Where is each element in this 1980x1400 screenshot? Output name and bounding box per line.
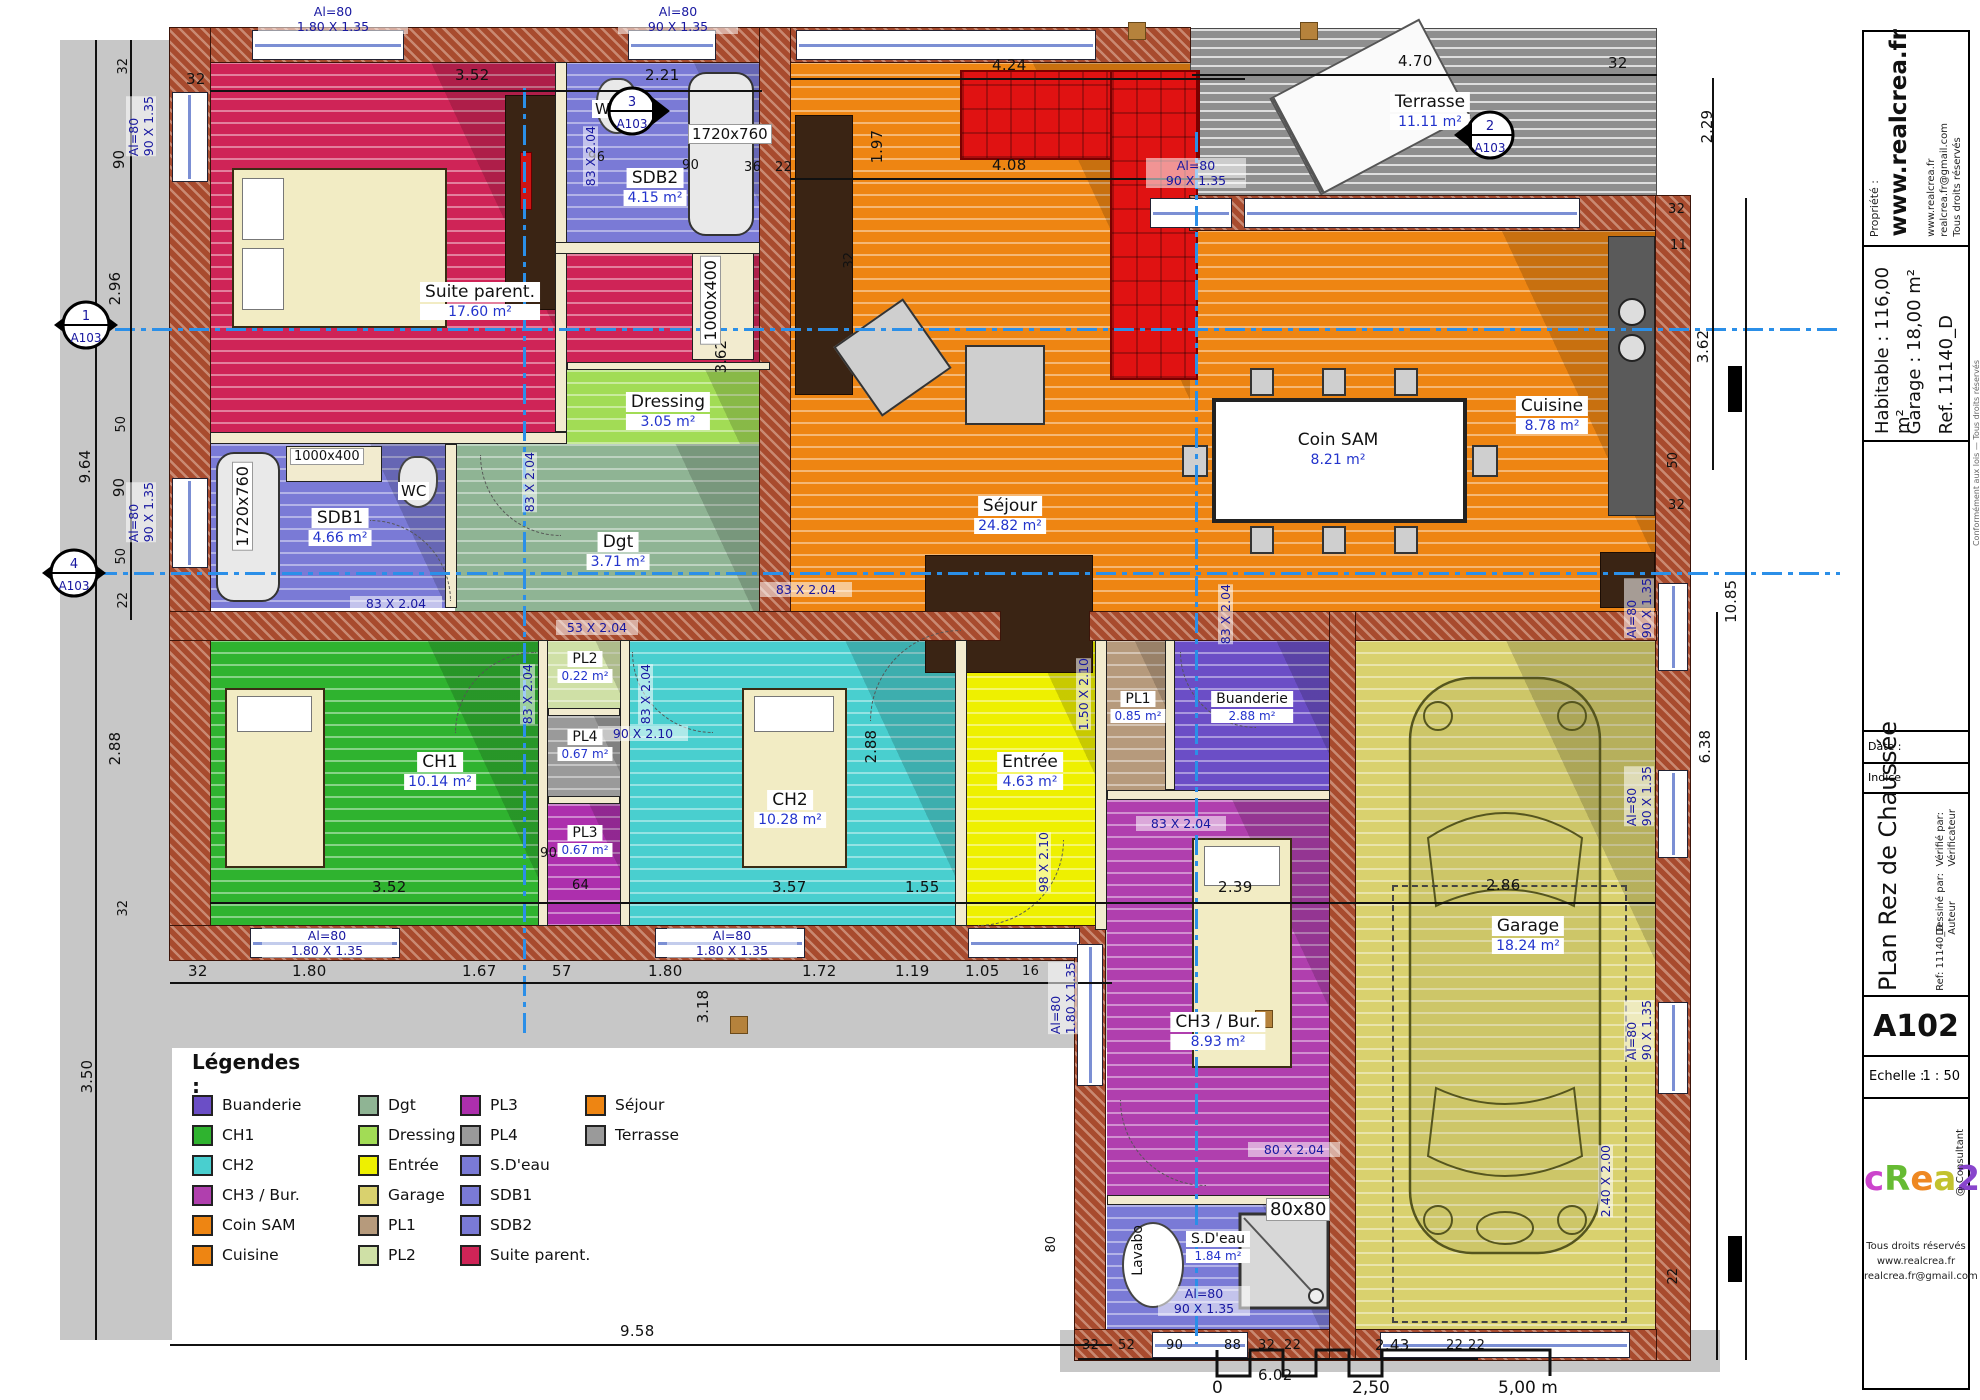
legend-item-label: SDB2 — [490, 1216, 532, 1234]
dim-label: 22 — [116, 592, 131, 609]
legend-item-label: PL2 — [388, 1246, 416, 1264]
dim-label: 1.80 — [648, 962, 683, 980]
shower-size-label: 80x80 — [1266, 1198, 1330, 1221]
door-annotation: 83 X 2.04 — [638, 664, 653, 724]
legend-item: Garage — [358, 1180, 456, 1210]
dim-label: 32 — [1668, 498, 1685, 513]
room-label-pl2: PL2 0.22 m² — [557, 648, 612, 683]
dim-label: 32 — [1082, 1338, 1099, 1353]
kitchen-sink — [1618, 298, 1646, 326]
marker-number: 1 — [82, 309, 90, 324]
dim-line — [790, 78, 1245, 80]
legend-swatch — [585, 1095, 606, 1116]
marker-number: 2 — [1486, 119, 1494, 134]
wood-post — [730, 1016, 748, 1034]
dim-label: 1.55 — [905, 878, 940, 896]
legend-swatch — [358, 1185, 379, 1206]
legend-swatch — [460, 1185, 481, 1206]
room-label-cuisine: Cuisine 8.78 m² — [1516, 396, 1588, 434]
legend-item-label: CH1 — [222, 1126, 254, 1144]
window-annotation: Al=80 90 X 1.35 — [1624, 1000, 1654, 1060]
dim-label: 64 — [572, 878, 589, 893]
dim-line — [1745, 198, 1747, 1360]
legend-item: Suite parent. — [460, 1240, 590, 1270]
door-annotation: 83 X 2.04 — [522, 452, 537, 512]
dim-label: 57 — [552, 962, 572, 980]
dining-chair — [1322, 368, 1346, 396]
window-annotation: Al=80 90 X 1.35 — [1624, 766, 1654, 826]
dim-label: 2.86 — [1486, 876, 1521, 894]
legend-swatch — [192, 1095, 213, 1116]
bath-size-label: 1720x760 — [688, 124, 772, 144]
sink-size-label: 1000x400 — [290, 448, 364, 465]
legend-swatch — [192, 1185, 213, 1206]
legend-item: S.D'eau — [460, 1150, 590, 1180]
floor-plan-sheet: 32 3.52 2.21 96 90 36 22 4.24 4.08 1.97 … — [0, 0, 1980, 1400]
legend-column-4: Séjour Terrasse — [585, 1090, 679, 1150]
room-label-sdb2: SDB2 4.15 m² — [624, 168, 687, 206]
legend-item-label: Entrée — [388, 1156, 439, 1174]
dim-label: 80 — [1044, 1236, 1059, 1253]
legend-swatch — [358, 1155, 379, 1176]
room-label-pl1: PL1 0.85 m² — [1110, 688, 1165, 723]
window-right-sejour2 — [1658, 770, 1688, 858]
legend-swatch — [192, 1155, 213, 1176]
fold-mark — [1728, 366, 1742, 412]
legend-item: Dgt — [358, 1090, 456, 1120]
dim-label: 11 — [1670, 238, 1687, 253]
dim-label: 6.38 — [1696, 730, 1714, 763]
legend-swatch — [192, 1125, 213, 1146]
partition — [620, 640, 630, 926]
dim-label: 50 — [114, 548, 129, 565]
legend-swatch — [460, 1245, 481, 1266]
dim-label: 1.67 — [462, 962, 497, 980]
tb-site: www.realcrea.fr — [1886, 29, 1912, 237]
room-label-coinsam: Coin SAM 8.21 m² — [1293, 430, 1384, 468]
tv-suite — [520, 152, 532, 210]
window-annotation: Al=80 1.80 X 1.35 — [1048, 962, 1078, 1034]
lavabo-label: Lavabo — [1130, 1222, 1146, 1279]
tb-verifier-label: Vérificateur — [1947, 809, 1958, 867]
room-label-dressing: Dressing 3.05 m² — [626, 392, 710, 430]
legend-column-1: Buanderie CH1 CH2 CH3 / Bur. Coin SAM Cu… — [192, 1090, 301, 1270]
pillow — [754, 696, 834, 732]
door-annotation: 83 X 2.04 — [583, 126, 598, 186]
room-label-dgt: Dgt 3.71 m² — [587, 532, 650, 570]
centerline-h1 — [115, 328, 1840, 331]
dim-label: 4.08 — [992, 156, 1027, 174]
dim-label: 16 — [1022, 964, 1039, 979]
partition — [538, 640, 548, 926]
door-annotation: 83 X 2.04 — [1136, 816, 1226, 831]
centerline-v2 — [1195, 132, 1198, 1344]
legend-item-label: Dressing — [388, 1126, 456, 1144]
wall-mid-right — [1090, 612, 1656, 640]
dim-label: 22 — [775, 160, 792, 175]
partition — [567, 362, 770, 370]
partition — [210, 432, 567, 444]
door-annotation: 1.50 X 2.10 — [1076, 658, 1091, 730]
dim-label: 3.62 — [712, 340, 730, 373]
legend-item-label: S.D'eau — [490, 1156, 550, 1174]
room-label-garage: Garage 18.24 m² — [1492, 916, 1564, 954]
dining-chair — [1250, 368, 1274, 396]
dim-label: 90 — [1166, 1338, 1183, 1353]
logo-char: R — [1884, 1159, 1910, 1199]
door-annotation: 83 X 2.04 — [760, 582, 852, 597]
legend-item: PL3 — [460, 1090, 590, 1120]
dim-line — [1192, 74, 1657, 76]
legend-item: CH1 — [192, 1120, 301, 1150]
scale-mid: 2,50 — [1352, 1378, 1390, 1398]
legend-item: CH2 — [192, 1150, 301, 1180]
room-label-buanderie: Buanderie 2.88 m² — [1211, 688, 1293, 723]
logo-char: c — [1864, 1159, 1884, 1199]
legend-swatch — [460, 1095, 481, 1116]
window-annotation: Al=80 90 X 1.35 — [1624, 578, 1654, 638]
room-label-ch1: CH1 10.14 m² — [404, 752, 476, 790]
room-label-pl4: PL4 0.67 m² — [557, 726, 612, 761]
section-marker-4: 4 A103 — [40, 544, 108, 602]
room-label-sejour: Séjour 24.82 m² — [974, 496, 1046, 534]
door-annotation: 98 X 2.10 — [1036, 832, 1051, 892]
window-terrasse-bay — [1244, 198, 1580, 228]
room-label-ch3: CH3 / Bur. 8.93 m² — [1170, 1012, 1265, 1050]
legend-swatch — [358, 1125, 379, 1146]
shower-tray — [1238, 1212, 1330, 1310]
legend-column-3: PL3 PL4 S.D'eau SDB1 SDB2 Suite parent. — [460, 1090, 590, 1270]
logo-char: a — [1933, 1159, 1956, 1199]
door-annotation: 53 X 2.04 — [556, 620, 638, 635]
dim-label: 36 — [744, 160, 761, 175]
legend-item-label: Séjour — [615, 1096, 664, 1114]
partition — [548, 796, 620, 804]
legend-item: Buanderie — [192, 1090, 301, 1120]
legend-swatch — [358, 1215, 379, 1236]
room-label-pl3: PL3 0.67 m² — [557, 822, 612, 857]
door-annotation: 2.40 X 2.00 — [1598, 1145, 1613, 1217]
tb-scale-value: 1 : 50 — [1923, 1069, 1960, 1084]
wall-garage-divider — [1330, 612, 1355, 1360]
legend-item: Séjour — [585, 1090, 679, 1120]
sink-size-label: 1000x400 — [700, 256, 721, 345]
room-label-entree: Entrée 4.63 m² — [997, 752, 1063, 790]
door-annotation: 83 X 2.04 — [350, 596, 442, 611]
scale-zero: 0 — [1212, 1378, 1223, 1398]
room-label-ch2: CH2 10.28 m² — [754, 790, 826, 828]
tb-verified-label: Vérifié par: — [1935, 812, 1946, 867]
legend-swatch — [460, 1155, 481, 1176]
legend-item: PL4 — [460, 1120, 590, 1150]
partition — [1165, 640, 1175, 790]
dim-line — [210, 90, 762, 92]
dining-chair — [1394, 368, 1418, 396]
dim-label: 4.24 — [992, 56, 1027, 74]
dim-label: 3.52 — [455, 66, 490, 84]
legend-item-label: Cuisine — [222, 1246, 279, 1264]
dim-label: 9.58 — [620, 1322, 655, 1340]
crea-logo: cRea2l — [1864, 1159, 1968, 1199]
section-marker-3: 3 A103 — [600, 82, 672, 140]
window-annotation: Al=80 90 X 1.35 — [126, 482, 156, 542]
legend-column-2: Dgt Dressing Entrée Garage PL1 PL2 — [358, 1090, 456, 1270]
dining-chair — [1250, 526, 1274, 554]
partition — [548, 708, 620, 716]
legend-item-label: Suite parent. — [490, 1246, 590, 1264]
window-annotation: Al=80 90 X 1.35 — [1158, 1286, 1250, 1316]
dim-label: 32 — [186, 70, 206, 88]
dim-label: 4.70 — [1398, 52, 1433, 70]
dim-label: 1.80 — [292, 962, 327, 980]
logo-char: e — [1910, 1159, 1933, 1199]
window-ch3-left — [1077, 944, 1103, 1086]
centerline-v1 — [523, 88, 526, 1038]
dim-label: 3.52 — [372, 878, 407, 896]
marker-ref: A103 — [70, 331, 101, 345]
shadow-left — [60, 40, 172, 1340]
legend-swatch — [460, 1125, 481, 1146]
window-terrasse-small — [1150, 198, 1232, 228]
legend-item: CH3 / Bur. — [192, 1180, 301, 1210]
window-left-suite — [172, 92, 208, 182]
window-annotation: Al=80 1.80 X 1.35 — [258, 4, 408, 34]
dim-label: 3.50 — [78, 1060, 96, 1093]
marker-ref: A103 — [58, 579, 89, 593]
pillow — [237, 696, 312, 732]
dim-line — [170, 1344, 1112, 1346]
legend-item: Dressing — [358, 1120, 456, 1150]
dim-label: 32 — [116, 900, 131, 917]
title-block: Propriété : www.realcrea.fr www.realcrea… — [1862, 30, 1970, 1390]
wood-post — [1300, 22, 1318, 40]
room-label-sdeau: S.D'eau 1.84 m² — [1186, 1228, 1250, 1263]
legend-item: PL1 — [358, 1210, 456, 1240]
legend-item: Coin SAM — [192, 1210, 301, 1240]
legend-swatch — [358, 1245, 379, 1266]
window-annotation: Al=80 90 X 1.35 — [126, 96, 156, 156]
marker-number: 4 — [70, 557, 78, 572]
marker-ref: A103 — [616, 117, 647, 131]
window-left-sdb1 — [172, 478, 208, 568]
partition — [1095, 640, 1107, 930]
legend-item-label: Buanderie — [222, 1096, 301, 1114]
tb-plan-title: PLan Rez de Chaussée — [1874, 721, 1902, 991]
centerline-h2 — [60, 572, 1840, 575]
dim-label: 3.57 — [772, 878, 807, 896]
legend-item-label: PL3 — [490, 1096, 518, 1114]
legend-item-label: PL4 — [490, 1126, 518, 1144]
dim-label: 50 — [1666, 452, 1681, 469]
dim-label: 22 — [1666, 1268, 1681, 1285]
window-sdb2-top — [628, 30, 716, 60]
window-annotation: Al=80 90 X 1.35 — [1146, 158, 1246, 188]
dim-label: 1.72 — [802, 962, 837, 980]
dim-label: 32 — [842, 252, 857, 269]
tb-author-label: Auteur — [1947, 901, 1958, 935]
tb-fine-print: Conformément aux lois — Tous droits rése… — [1972, 360, 1980, 546]
tb-scale-label: Echelle : — [1869, 1069, 1924, 1084]
legend-item-label: SDB1 — [490, 1186, 532, 1204]
fold-mark — [1728, 1236, 1742, 1282]
tb-contact: www.realcrea.fr realcrea.fr@gmail.com To… — [1925, 123, 1964, 237]
marker-number: 3 — [628, 95, 636, 110]
legend-item-label: CH3 / Bur. — [222, 1186, 300, 1204]
dim-label: 2.39 — [1218, 878, 1253, 896]
window-annotation: Al=80 1.80 X 1.35 — [667, 928, 797, 958]
dim-label: 32 — [116, 58, 131, 75]
tb-drawn-label: Dessiné par: — [1935, 873, 1946, 936]
legend-swatch — [585, 1125, 606, 1146]
dim-label: 10.85 — [1722, 580, 1740, 623]
legend-item-label: Coin SAM — [222, 1216, 295, 1234]
tb-sheet-number: A102 — [1873, 1009, 1959, 1044]
tb-ref: Ref. 11140_D — [1936, 315, 1957, 434]
legend-swatch — [192, 1215, 213, 1236]
legend-item: SDB1 — [460, 1180, 590, 1210]
door-annotation: 83 X 2.04 — [520, 664, 535, 724]
dim-label: 52 — [1118, 1338, 1135, 1353]
legend-swatch — [192, 1245, 213, 1266]
wood-post — [1128, 22, 1146, 40]
dim-label: 1.97 — [868, 130, 886, 163]
legend-swatch — [460, 1215, 481, 1236]
tb-rights: Tous droits réservés www.realcrea.fr rea… — [1864, 1239, 1968, 1284]
legend-item: PL2 — [358, 1240, 456, 1270]
room-label-sdb1: SDB1 4.66 m² — [309, 508, 372, 546]
dim-line — [170, 982, 1112, 984]
legend-item: Entrée — [358, 1150, 456, 1180]
dining-chair — [1472, 445, 1498, 477]
kitchen-sink — [1618, 334, 1646, 362]
window-sejour-bay — [796, 30, 1096, 60]
section-marker-1: 1 A103 — [52, 296, 120, 354]
tb-propriete: Propriété : www.realcrea.fr www.realcrea… — [1864, 32, 1968, 247]
armchair — [965, 345, 1045, 425]
dim-label: 1.19 — [895, 962, 930, 980]
window-suite-top — [252, 30, 404, 60]
dim-label: 3.18 — [694, 990, 712, 1023]
partition — [555, 242, 760, 254]
dim-line — [210, 902, 1655, 904]
dim-label: 2.88 — [862, 730, 880, 763]
pillow — [242, 178, 284, 240]
legend-item-label: Terrasse — [615, 1126, 679, 1144]
room-label-suite: Suite parent. 17.60 m² — [420, 282, 540, 320]
wall-sejour-divider — [760, 28, 790, 612]
legend-item-label: PL1 — [388, 1216, 416, 1234]
door-annotation: 83 X 2.04 — [1218, 584, 1233, 644]
tb-title: PLan Rez de Chaussée Ref: 11140_D Dessin… — [1864, 794, 1968, 997]
dim-label: 2.29 — [1698, 110, 1716, 143]
legend-item: Cuisine — [192, 1240, 301, 1270]
marker-ref: A103 — [1474, 141, 1505, 155]
tb-scale: Echelle : 1 : 50 — [1864, 1057, 1968, 1099]
tb-surfaces: Habitable : 116,00 m² Garage : 18,00 m² … — [1864, 247, 1968, 442]
dim-label: 32 — [1668, 202, 1685, 217]
legend-item: SDB2 — [460, 1210, 590, 1240]
window-annotation: Al=80 1.80 X 1.35 — [262, 928, 392, 958]
legend-item-label: CH2 — [222, 1156, 254, 1174]
section-marker-2: 2 A103 — [1452, 106, 1524, 164]
tb-propriete-label: Propriété : — [1868, 180, 1881, 237]
legend-item-label: Dgt — [388, 1096, 416, 1114]
dim-line — [1716, 612, 1718, 1360]
bathtub-sdb2 — [688, 72, 754, 236]
tb-consultant: @ Consultant — [1955, 1129, 1966, 1196]
dim-label: 3.62 — [1694, 330, 1712, 363]
partition — [1107, 790, 1330, 800]
window-right-sejour — [1658, 583, 1688, 671]
dining-chair — [1322, 526, 1346, 554]
legend-item-label: Garage — [388, 1186, 445, 1204]
kitchen-counter — [1608, 236, 1655, 516]
bath-size-label: 1720x760 — [232, 462, 253, 551]
dim-label: 2.88 — [106, 732, 124, 765]
pillow — [242, 248, 284, 310]
dim-label: 90 — [540, 846, 557, 861]
dim-label: 32 — [1608, 54, 1628, 72]
dining-chair — [1394, 526, 1418, 554]
dim-label: 50 — [114, 416, 129, 433]
tb-empty — [1864, 442, 1968, 732]
legend-item: Terrasse — [585, 1120, 679, 1150]
dim-line — [95, 40, 97, 1340]
front-door — [968, 928, 1080, 958]
dim-label: 9.64 — [76, 450, 94, 483]
dim-label: 32 — [188, 962, 208, 980]
scale-end: 5,00 m — [1498, 1378, 1558, 1398]
tb-logo-box: cRea2l @ Consultant Tous droits réservés… — [1864, 1099, 1968, 1387]
window-annotation: Al=80 90 X 1.35 — [618, 4, 738, 34]
dim-label: 1.05 — [965, 962, 1000, 980]
wc-label: WC — [398, 482, 429, 500]
window-right-garage — [1658, 1002, 1688, 1094]
legend-swatch — [358, 1095, 379, 1116]
door-annotation: 80 X 2.04 — [1248, 1142, 1340, 1157]
tb-sheet: A102 — [1864, 997, 1968, 1057]
tb-garage: Garage : 18,00 m² — [1904, 269, 1925, 434]
